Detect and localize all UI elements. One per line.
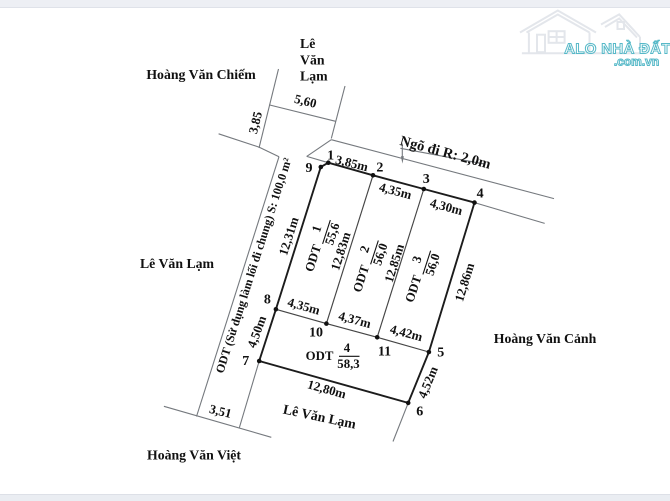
- svg-text:4,42m: 4,42m: [388, 322, 424, 344]
- svg-text:Hoàng Văn Cảnh: Hoàng Văn Cảnh: [494, 331, 597, 346]
- svg-text:.com.vn: .com.vn: [614, 55, 659, 69]
- svg-text:10: 10: [309, 326, 323, 341]
- svg-text:ODT: ODT: [306, 349, 334, 363]
- svg-text:12,80m: 12,80m: [306, 377, 348, 401]
- svg-text:Hoàng Văn Chiếm: Hoàng Văn Chiếm: [146, 67, 256, 82]
- svg-text:3,85m: 3,85m: [334, 153, 370, 175]
- svg-text:12,31m: 12,31m: [276, 215, 301, 257]
- svg-text:2: 2: [376, 161, 383, 176]
- svg-text:Lê Văn Lạm: Lê Văn Lạm: [282, 402, 358, 432]
- svg-text:4,50m: 4,50m: [245, 314, 270, 350]
- svg-text:11: 11: [378, 345, 391, 360]
- svg-text:6: 6: [416, 404, 423, 419]
- svg-text:4,35m: 4,35m: [286, 295, 322, 318]
- svg-text:1: 1: [309, 224, 324, 234]
- svg-text:4,52m: 4,52m: [415, 364, 441, 400]
- svg-text:1: 1: [327, 149, 334, 164]
- svg-text:9: 9: [306, 161, 313, 176]
- svg-text:3: 3: [409, 254, 424, 264]
- svg-text:Hoàng Văn Việt: Hoàng Văn Việt: [147, 448, 241, 463]
- svg-text:ODT: ODT: [350, 263, 372, 294]
- svg-text:8: 8: [264, 292, 271, 307]
- svg-text:3,85: 3,85: [246, 110, 265, 135]
- svg-text:Lê: Lê: [300, 36, 315, 51]
- svg-text:5,60: 5,60: [293, 92, 318, 111]
- svg-text:ODT: ODT: [403, 273, 425, 304]
- svg-text:Lạm: Lạm: [300, 69, 328, 84]
- svg-text:Văn: Văn: [300, 53, 325, 68]
- svg-text:7: 7: [242, 354, 249, 369]
- svg-text:Lê Văn Lạm: Lê Văn Lạm: [140, 256, 215, 271]
- svg-text:3: 3: [423, 172, 430, 187]
- svg-text:12,86m: 12,86m: [452, 261, 477, 303]
- svg-text:3,51: 3,51: [208, 402, 233, 421]
- svg-text:58,3: 58,3: [337, 357, 359, 371]
- svg-text:5: 5: [437, 346, 444, 361]
- svg-text:4,35m: 4,35m: [378, 180, 414, 202]
- svg-text:4: 4: [344, 341, 351, 355]
- svg-text:ODT: ODT: [302, 242, 324, 273]
- svg-text:Ngõ đi R: 2,0m: Ngõ đi R: 2,0m: [398, 133, 492, 173]
- svg-text:2: 2: [357, 244, 372, 254]
- svg-text:4: 4: [477, 186, 484, 201]
